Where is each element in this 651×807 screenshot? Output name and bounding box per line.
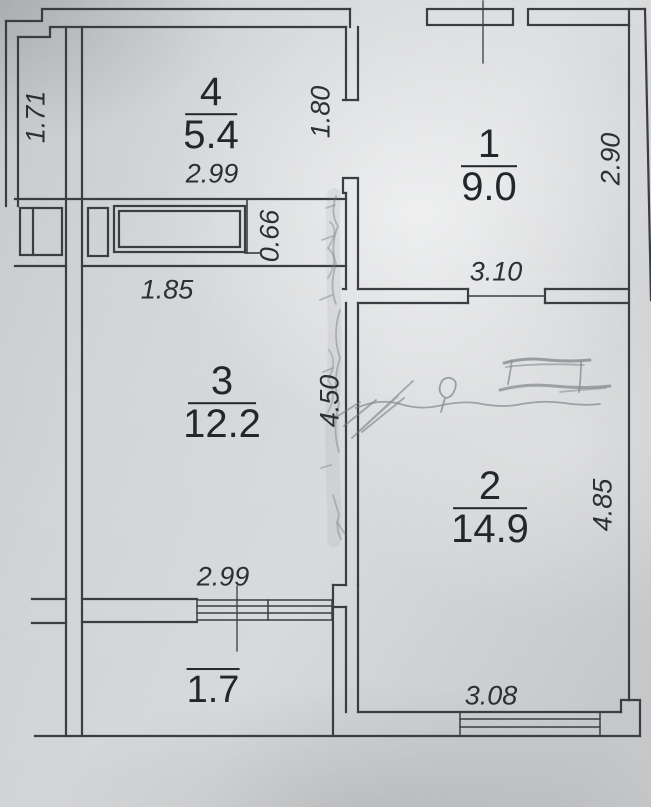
room-2-label: 2 14.9 [451,468,529,548]
room-4-area: 5.4 [183,117,239,154]
central-wall [343,27,358,289]
dim-room2-side: 4.85 [590,479,617,532]
dim-room1-side: 2.90 [598,133,625,186]
room-3-number: 3 [211,363,233,400]
dim-room2-width: 3.08 [465,683,518,710]
room-4-number: 4 [200,74,222,111]
dim-room3-side: 4.50 [317,375,344,428]
balcony-area: 1.7 [187,668,240,708]
dim-closet-depth: 0.66 [257,210,284,263]
room-1-area: 9.0 [461,169,517,206]
dim-closet-row-width: 1.85 [141,277,194,304]
closet-row [15,199,346,266]
room-1-number: 1 [478,126,500,163]
room-4-label: 4 5.4 [183,74,239,154]
dim-room3-width: 2.99 [197,564,250,591]
room-3-area: 12.2 [183,406,261,443]
balcony-label: 1.7 [187,668,240,708]
left-wall [66,27,82,736]
room-2-area: 14.9 [451,511,529,548]
room-3-label: 3 12.2 [183,363,261,443]
room-1-label: 1 9.0 [461,126,517,206]
dim-loggia-side: 1.71 [23,91,50,144]
dim-room1-width: 3.10 [470,259,523,286]
wall-room1-room2 [358,289,629,303]
balcony-wall-window [32,586,332,651]
floor-plan-photo: 4 5.4 1 9.0 3 12.2 2 14.9 1.7 2.99 1.71 … [0,0,651,807]
dim-room4-opening: 1.80 [308,86,335,139]
balcony-window-glazing [197,600,332,620]
room2-window-glazing [460,712,600,736]
bottom-wall [35,712,640,736]
dim-room4-width: 2.99 [186,161,239,188]
room-2-number: 2 [479,468,501,505]
